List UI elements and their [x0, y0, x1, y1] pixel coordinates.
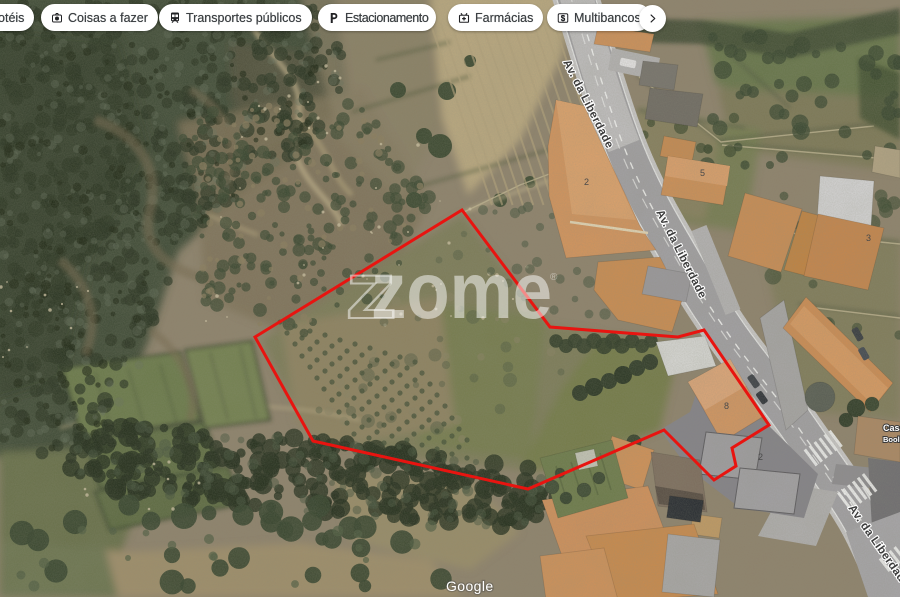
svg-text:$: $ [561, 14, 566, 23]
svg-text:3: 3 [866, 233, 871, 243]
svg-text:2: 2 [758, 452, 763, 462]
svg-text:Google: Google [446, 578, 494, 594]
svg-text:2: 2 [584, 177, 589, 187]
svg-text:®: ® [550, 272, 558, 283]
svg-text:Bool: Bool [883, 435, 900, 444]
svg-text:zome: zome [371, 246, 552, 335]
svg-text:5: 5 [700, 168, 705, 178]
svg-text:Casa: Casa [883, 423, 900, 433]
svg-text:8: 8 [724, 401, 729, 411]
